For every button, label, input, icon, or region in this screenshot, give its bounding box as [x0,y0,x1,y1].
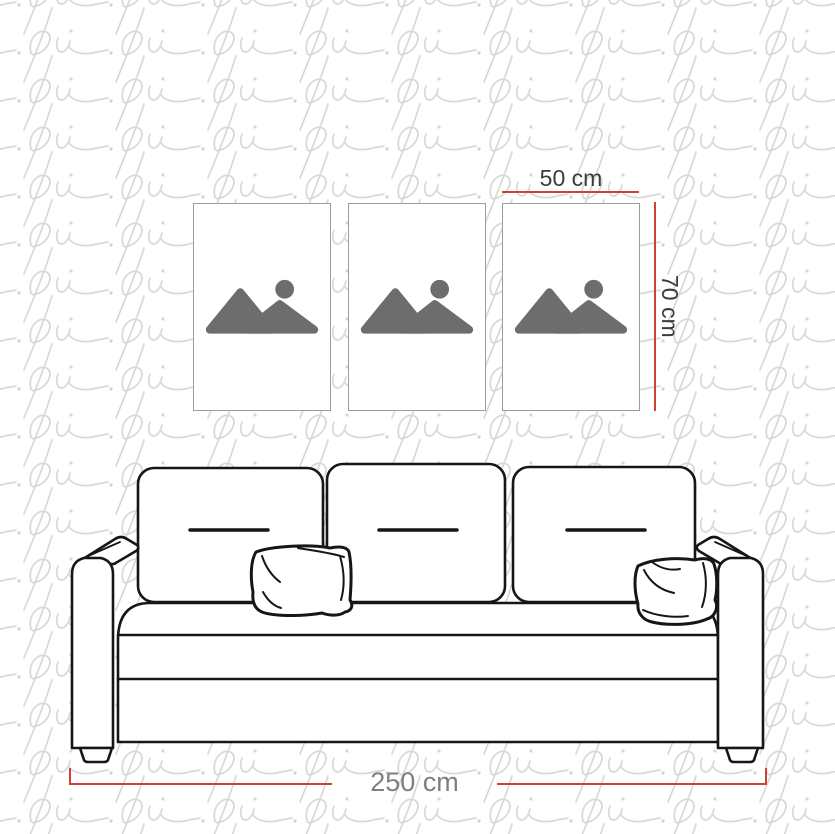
image-placeholder-icon [349,204,485,410]
image-placeholder-icon [194,204,330,410]
watermark-pattern [0,0,835,834]
sofa-width-tick-right [765,768,767,785]
frame-height-label: 70 cm [658,202,682,411]
size-guide-diagram: 50 cm 70 cm [0,0,835,834]
sofa-width-label: 250 cm [332,769,497,796]
frame-height-line [654,202,656,411]
image-placeholder-icon [503,204,639,410]
art-frame [193,203,331,411]
sofa-width-line-left [70,783,332,785]
frame-width-label: 50 cm [502,166,640,190]
frame-width-line [502,191,639,193]
sofa-width-line-right [497,783,766,785]
art-frame [348,203,486,411]
art-frame [502,203,640,411]
